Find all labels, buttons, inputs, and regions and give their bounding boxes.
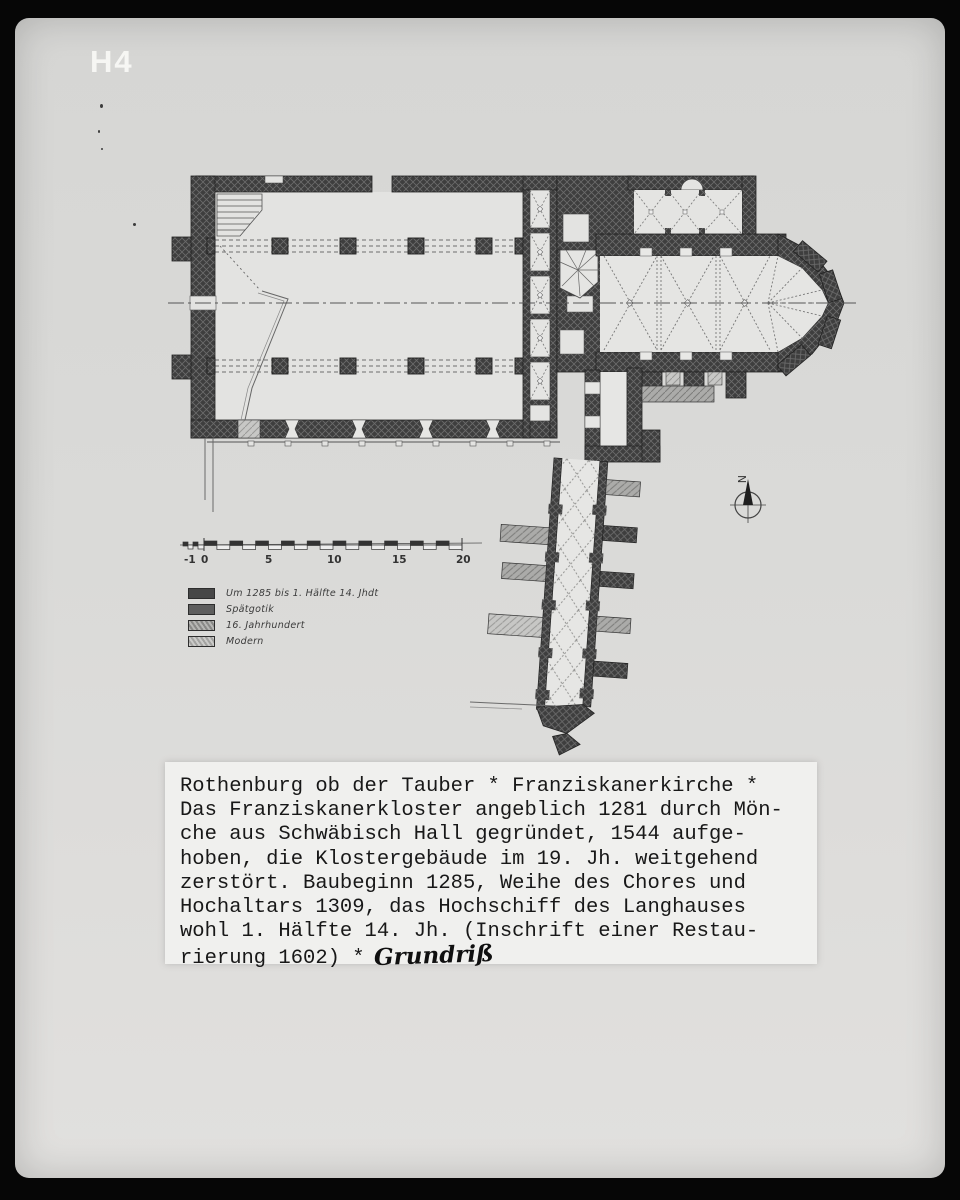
legend: Um 1285 bis 1. Hälfte 14. Jhdt Spätgotik… <box>188 585 378 649</box>
scale-label: 0 <box>201 554 208 566</box>
legend-label: Um 1285 bis 1. Hälfte 14. Jhdt <box>226 588 378 599</box>
scale-label: -1 <box>184 554 196 566</box>
legend-item: Spätgotik <box>188 601 378 617</box>
scanned-photo-card: H4 <box>0 0 960 1200</box>
caption-line: che aus Schwäbisch Hall gegründet, 1544 … <box>180 823 817 847</box>
caption-line: hoben, die Klostergebäude im 19. Jh. wei… <box>180 848 817 872</box>
caption-last-line: rierung 1602) *Grundriß <box>180 944 817 971</box>
corner-label: H4 <box>90 44 134 80</box>
dust-speck <box>133 223 136 226</box>
legend-swatch-medieval <box>188 588 215 599</box>
scale-label: 10 <box>327 554 342 566</box>
legend-item: Modern <box>188 633 378 649</box>
legend-label: Modern <box>226 636 264 647</box>
legend-item: 16. Jahrhundert <box>188 617 378 633</box>
handwritten-grundriss: Grundriß <box>373 942 493 970</box>
scale-label: 15 <box>392 554 407 566</box>
dust-speck <box>98 130 100 133</box>
east-bay-strip <box>523 176 557 438</box>
scale-bar: -1 0 5 10 15 20 <box>180 538 482 566</box>
caption-line: Das Franziskanerkloster angeblich 1281 d… <box>180 799 817 823</box>
legend-swatch-modern <box>188 636 215 647</box>
caption-line: Hochaltars 1309, das Hochschiff des Lang… <box>180 896 817 920</box>
caption-line-text: rierung 1602) * <box>180 947 365 970</box>
dust-speck <box>101 148 103 150</box>
caption-card: Rothenburg ob der Tauber * Franziskanerk… <box>165 762 817 964</box>
scale-label: 5 <box>265 554 272 566</box>
north-compass: N <box>730 475 766 523</box>
dust-speck <box>100 104 103 108</box>
caption-line: zerstört. Baubeginn 1285, Weihe des Chor… <box>180 872 817 896</box>
legend-swatch-16jh <box>188 620 215 631</box>
floor-plan-drawing: N <box>160 160 860 760</box>
legend-item: Um 1285 bis 1. Hälfte 14. Jhdt <box>188 585 378 601</box>
legend-swatch-spaetgotik <box>188 604 215 615</box>
legend-label: 16. Jahrhundert <box>226 620 305 631</box>
caption-line: wohl 1. Hälfte 14. Jh. (Inschrift einer … <box>180 920 817 944</box>
scale-label: 20 <box>456 554 471 566</box>
cloister-corridor <box>479 454 641 759</box>
compass-n-label: N <box>735 475 748 483</box>
nave <box>172 176 560 512</box>
legend-label: Spätgotik <box>226 604 274 615</box>
caption-line: Rothenburg ob der Tauber * Franziskanerk… <box>180 775 817 799</box>
photo-area: H4 <box>15 18 945 1178</box>
